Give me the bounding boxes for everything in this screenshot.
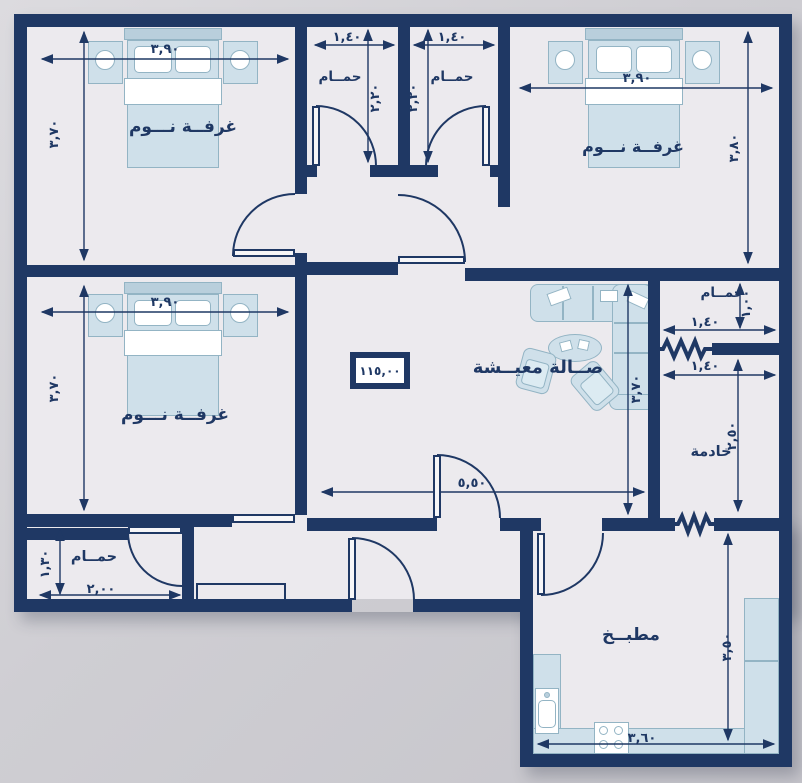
room-label-kitchen: مطبــخ: [594, 626, 668, 645]
wall: [370, 165, 438, 177]
faucet: [544, 692, 550, 698]
wall: [712, 343, 779, 355]
wall: [779, 14, 792, 767]
room-label-bath-top-right: حمــام: [424, 70, 480, 85]
sink-basin: [538, 700, 556, 728]
pillow: [636, 46, 672, 73]
door-leaf: [537, 533, 545, 595]
room-label-bath-top-left: حمــام: [312, 70, 368, 85]
wall: [307, 165, 317, 177]
door-leaf: [433, 455, 441, 518]
door-leaf: [348, 538, 356, 600]
lamp: [230, 50, 250, 70]
lamp: [555, 50, 575, 70]
room-label-bath-bottom-left: حمــام: [62, 550, 126, 566]
door-leaf: [232, 514, 295, 523]
wall: [490, 165, 498, 177]
wall: [307, 518, 437, 531]
dim-living-height: ٣,٧٠: [629, 367, 645, 411]
wall: [14, 514, 232, 527]
bed-sheet: [124, 78, 222, 105]
burner: [599, 726, 608, 735]
pillow: [596, 46, 632, 73]
total-area-value: ١١٥,٠٠: [355, 357, 405, 384]
dim-bath-bottom-left-height: ١,٣٠: [38, 542, 54, 586]
wall: [14, 14, 792, 27]
dim-maid-height: ٢,٥٠: [725, 414, 741, 458]
dim-bath-right-height: ١,٠٠: [739, 282, 755, 326]
door-leaf: [482, 106, 490, 166]
dim-bedroom-tr-width: ٣,٩٠: [605, 71, 669, 87]
lamp: [692, 50, 712, 70]
wall: [305, 262, 398, 275]
dim-bath-top-left-height: ٢,٢٠: [368, 76, 384, 120]
door-leaf: [233, 249, 295, 257]
dim-bedroom-tl-height: ٣,٧٠: [47, 112, 63, 156]
sofa-cushion-line: [592, 286, 594, 320]
dim-bath-right-width: ١,٤٠: [681, 315, 729, 331]
wall: [27, 265, 295, 277]
lamp: [230, 303, 250, 323]
room-label-bedroom-tl: غرفــة نـــوم: [108, 118, 258, 137]
dim-bath-top-right-height: ٢,٢٠: [406, 76, 422, 120]
room-label-living: صــالة معيــشة: [458, 358, 618, 378]
door-leaf: [128, 526, 182, 534]
wall: [27, 528, 128, 540]
sofa-cushion-line: [614, 352, 650, 354]
dim-bedroom-ml-height: ٣,٧٠: [47, 366, 63, 410]
total-area-box: ١١٥,٠٠: [350, 352, 410, 389]
dim-bath-top-right-width: ١,٤٠: [428, 30, 476, 46]
wall: [520, 754, 792, 767]
magazine: [577, 339, 590, 351]
throw-pillow: [600, 290, 618, 302]
dim-bedroom-ml-width: ٣,٩٠: [133, 295, 197, 311]
lamp: [95, 50, 115, 70]
wall: [520, 518, 533, 767]
door-leaf: [312, 106, 320, 166]
door-leaf: [398, 256, 465, 264]
dim-kitchen-height: ٣,٥٠: [720, 625, 736, 669]
bed-sheet: [124, 330, 222, 356]
sofa-cushion-line: [614, 322, 650, 324]
kitchen-counter-right: [744, 598, 779, 754]
wall: [413, 599, 533, 612]
dim-bedroom-tr-height: ٣,٨٠: [727, 126, 743, 170]
lamp: [95, 303, 115, 323]
dim-bath-top-left-width: ١,٤٠: [323, 30, 371, 46]
dim-maid-width: ١,٤٠: [681, 359, 729, 375]
wall: [500, 518, 541, 531]
wall: [498, 27, 510, 207]
room-label-bedroom-ml: غرفــة نـــوم: [100, 406, 250, 425]
room-label-bedroom-tr: غرفــة نـــوم: [568, 138, 698, 156]
bed-headboard: [124, 28, 222, 40]
counter-divider: [745, 660, 778, 662]
dim-bath-bottom-left-width: ٢,٠٠: [73, 582, 129, 598]
wall: [714, 518, 779, 531]
wall: [648, 281, 660, 518]
burner: [599, 740, 608, 749]
wall: [295, 253, 307, 515]
wall: [182, 526, 194, 612]
dim-kitchen-width: ٣,٦٠: [610, 731, 674, 747]
dim-living-width: ٥,٥٠: [446, 476, 498, 492]
bed-headboard: [585, 28, 683, 40]
dim-bedroom-tl-width: ٣,٩٠: [133, 42, 197, 58]
wall: [602, 518, 675, 531]
wall: [295, 27, 307, 194]
bed-headboard: [124, 282, 222, 294]
floor-plan: ١١٥,٠٠ غرفــة نـــوم غرفــة نـــوم غرفــ…: [0, 0, 802, 783]
wall: [465, 268, 792, 281]
